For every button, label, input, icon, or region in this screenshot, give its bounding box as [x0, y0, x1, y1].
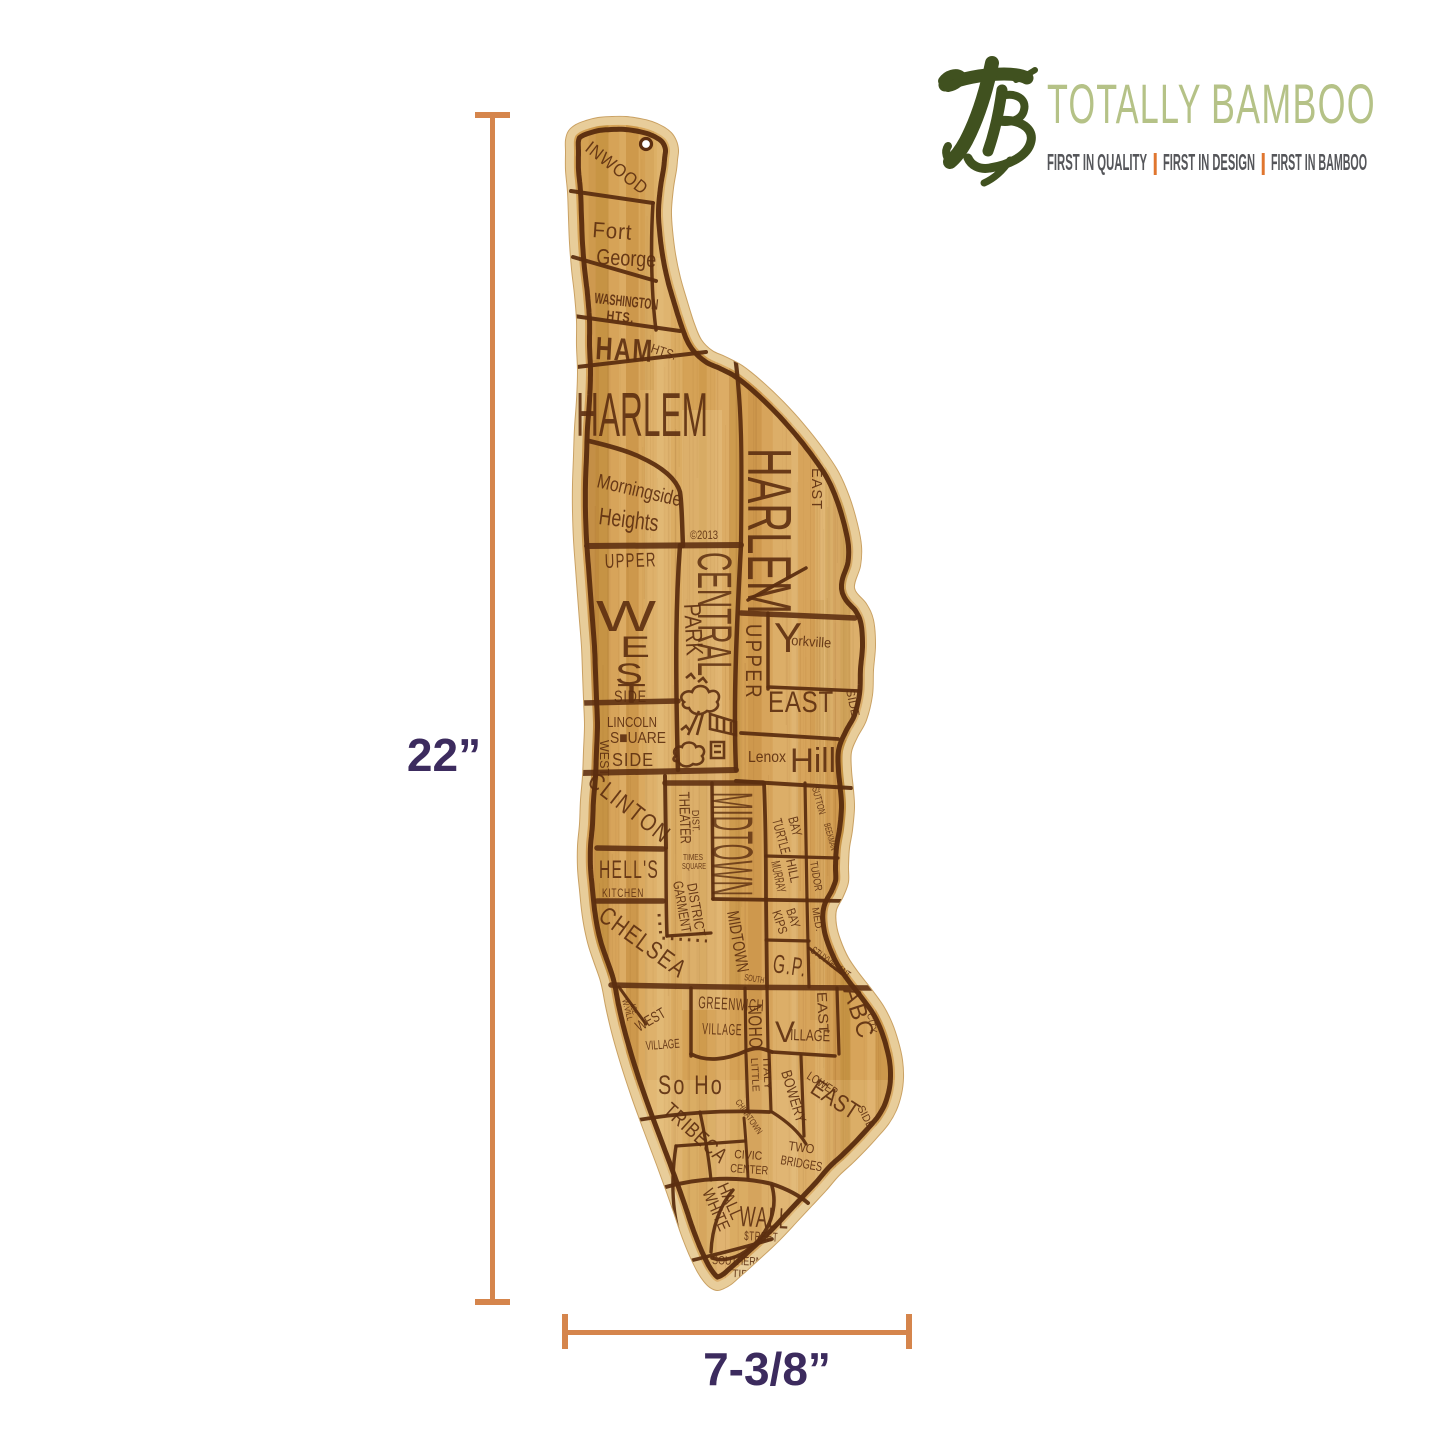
svg-text:G.P.: G.P. — [771, 948, 809, 982]
svg-text:LITTLE: LITTLE — [748, 1058, 761, 1093]
svg-text:KITCHEN: KITCHEN — [602, 886, 644, 900]
svg-text:DIST.: DIST. — [689, 810, 701, 832]
svg-text:|: | — [1152, 149, 1158, 175]
svg-text:LINCOLN: LINCOLN — [607, 714, 657, 731]
svg-text:VILLAGE: VILLAGE — [702, 1021, 743, 1039]
svg-text:BAMBOO: BAMBOO — [1211, 72, 1376, 135]
svg-text:S■UARE: S■UARE — [610, 730, 666, 747]
svg-text:Lenox: Lenox — [748, 749, 786, 766]
svg-text:EAST: EAST — [808, 468, 825, 510]
svg-text:|: | — [1260, 149, 1266, 175]
svg-text:SIDE: SIDE — [614, 687, 647, 706]
svg-text:7-3/8”: 7-3/8” — [703, 1343, 831, 1395]
svg-text:HELL'S: HELL'S — [599, 856, 659, 884]
svg-text:UPPER: UPPER — [604, 549, 657, 573]
svg-text:Fort: Fort — [592, 217, 634, 245]
svg-text:HARLEM: HARLEM — [576, 381, 708, 450]
svg-text:HTS.: HTS. — [606, 307, 636, 326]
svg-text:orkville: orkville — [791, 632, 832, 651]
svg-text:TOTALLY: TOTALLY — [1047, 72, 1202, 135]
svg-text:SIDE: SIDE — [612, 750, 654, 770]
svg-text:George: George — [596, 244, 657, 272]
svg-text:TIP: TIP — [732, 1268, 748, 1281]
svg-text:So Ho: So Ho — [658, 1070, 724, 1100]
svg-text:©2013: ©2013 — [690, 528, 718, 542]
svg-text:EAST: EAST — [768, 686, 834, 719]
svg-text:$TREET: $TREET — [744, 1228, 779, 1245]
svg-text:HARLEM: HARLEM — [734, 448, 803, 614]
svg-text:CENTER: CENTER — [730, 1161, 769, 1178]
svg-text:Hill: Hill — [790, 742, 836, 780]
svg-text:ILLAGE: ILLAGE — [790, 1027, 831, 1045]
svg-text:FIRST IN DESIGN: FIRST IN DESIGN — [1163, 149, 1255, 175]
svg-text:UPPER: UPPER — [741, 624, 766, 700]
svg-text:22”: 22” — [407, 729, 481, 781]
svg-text:SOUTHERN: SOUTHERN — [712, 1253, 762, 1269]
svg-text:FIRST IN BAMBOO: FIRST IN BAMBOO — [1271, 149, 1367, 175]
svg-text:PARK: PARK — [678, 603, 708, 656]
svg-text:VILLAGE: VILLAGE — [645, 1036, 680, 1053]
svg-text:FIRST IN QUALITY: FIRST IN QUALITY — [1047, 149, 1147, 175]
svg-text:ITALY: ITALY — [760, 1058, 773, 1091]
svg-text:HAM: HAM — [595, 330, 655, 369]
svg-text:NOHO: NOHO — [743, 1004, 766, 1049]
svg-text:MIDTOWN: MIDTOWN — [699, 792, 764, 896]
